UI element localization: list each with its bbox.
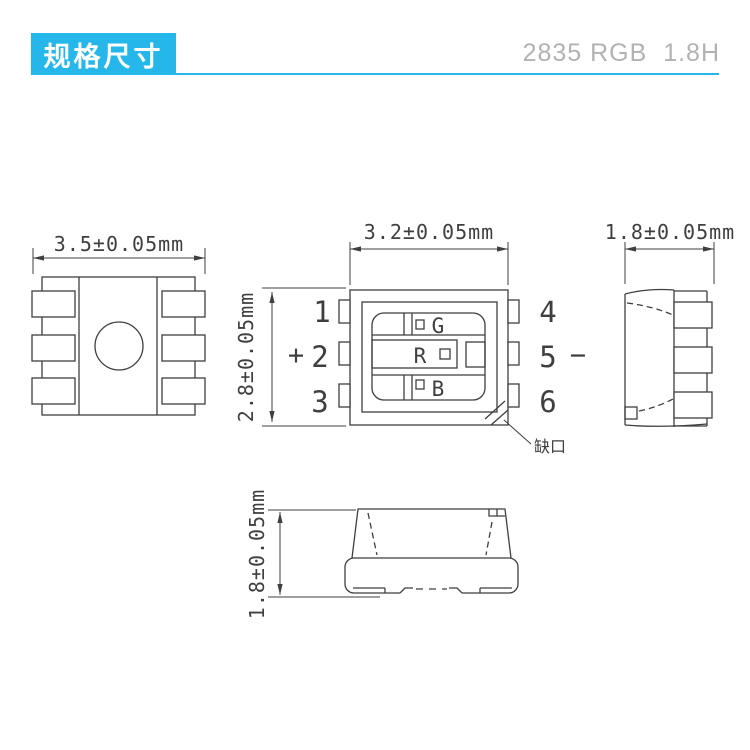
pin-1-label: 1 bbox=[313, 295, 330, 329]
pin-2-label: 2 bbox=[311, 340, 328, 374]
bottom-gap-mask bbox=[400, 589, 462, 598]
pad bbox=[674, 302, 712, 328]
top-view: 3.2±0.05mm 2.8±0.05mm 1 2 3 4 5 6 + − G … bbox=[234, 220, 586, 456]
extension-lines bbox=[625, 242, 714, 284]
pad bbox=[32, 378, 75, 404]
pad bbox=[674, 392, 712, 418]
anode-polarity-sign: + bbox=[288, 340, 304, 371]
section-title-box: 规格尺寸 bbox=[31, 33, 176, 75]
notch-label: 缺口 bbox=[534, 438, 566, 456]
cathode-polarity-sign: − bbox=[570, 340, 586, 371]
pin-3-label: 3 bbox=[311, 385, 328, 419]
pad bbox=[162, 335, 205, 361]
notch-leader-line bbox=[504, 420, 531, 444]
height-dimension-label: 1.8±0.05mm bbox=[245, 489, 269, 619]
package-outline bbox=[350, 290, 508, 425]
product-label: 2835 RGB 1.8H bbox=[523, 38, 720, 68]
pad bbox=[32, 291, 75, 317]
lens-hidden-edge bbox=[627, 303, 673, 315]
depth-dimension-label: 1.8±0.05mm bbox=[605, 220, 735, 244]
pad bbox=[339, 300, 350, 323]
width-dimension-label: 3.2±0.05mm bbox=[364, 220, 494, 244]
top-notch-mark bbox=[489, 509, 505, 516]
pad bbox=[32, 335, 75, 361]
pad bbox=[508, 300, 519, 323]
front-view: 1.8±0.05mm bbox=[245, 489, 518, 619]
height-dimension-label: 2.8±0.05mm bbox=[234, 292, 258, 422]
pad bbox=[508, 384, 519, 407]
chip-g-label: G bbox=[432, 314, 445, 338]
pin-6-label: 6 bbox=[539, 385, 556, 419]
reflector-hidden-edge bbox=[486, 522, 492, 555]
thermal-pad-circle bbox=[95, 322, 143, 370]
bottom-view: 3.5±0.05mm bbox=[32, 232, 205, 415]
pad bbox=[339, 342, 350, 365]
lens-outline bbox=[352, 509, 511, 558]
reflector-hidden-edge bbox=[368, 513, 377, 555]
lens-hidden-edge bbox=[639, 399, 673, 411]
body-top-edge bbox=[625, 290, 674, 295]
bottom-step bbox=[625, 407, 637, 419]
pad bbox=[674, 347, 712, 373]
spec-drawing: 3.5±0.05mm 3 bbox=[0, 0, 750, 750]
side-view: 1.8±0.05mm bbox=[605, 220, 735, 427]
pad bbox=[508, 342, 519, 365]
pad bbox=[162, 378, 205, 404]
pin-5-label: 5 bbox=[539, 340, 556, 374]
extension-lines bbox=[350, 242, 508, 285]
chip-r-label: R bbox=[414, 344, 427, 368]
section-title: 规格尺寸 bbox=[44, 35, 164, 74]
pad bbox=[162, 291, 205, 317]
width-dimension-label: 3.5±0.05mm bbox=[54, 232, 184, 256]
pin-4-label: 4 bbox=[539, 295, 556, 329]
pad bbox=[339, 384, 350, 407]
chip-b-label: B bbox=[432, 377, 445, 401]
